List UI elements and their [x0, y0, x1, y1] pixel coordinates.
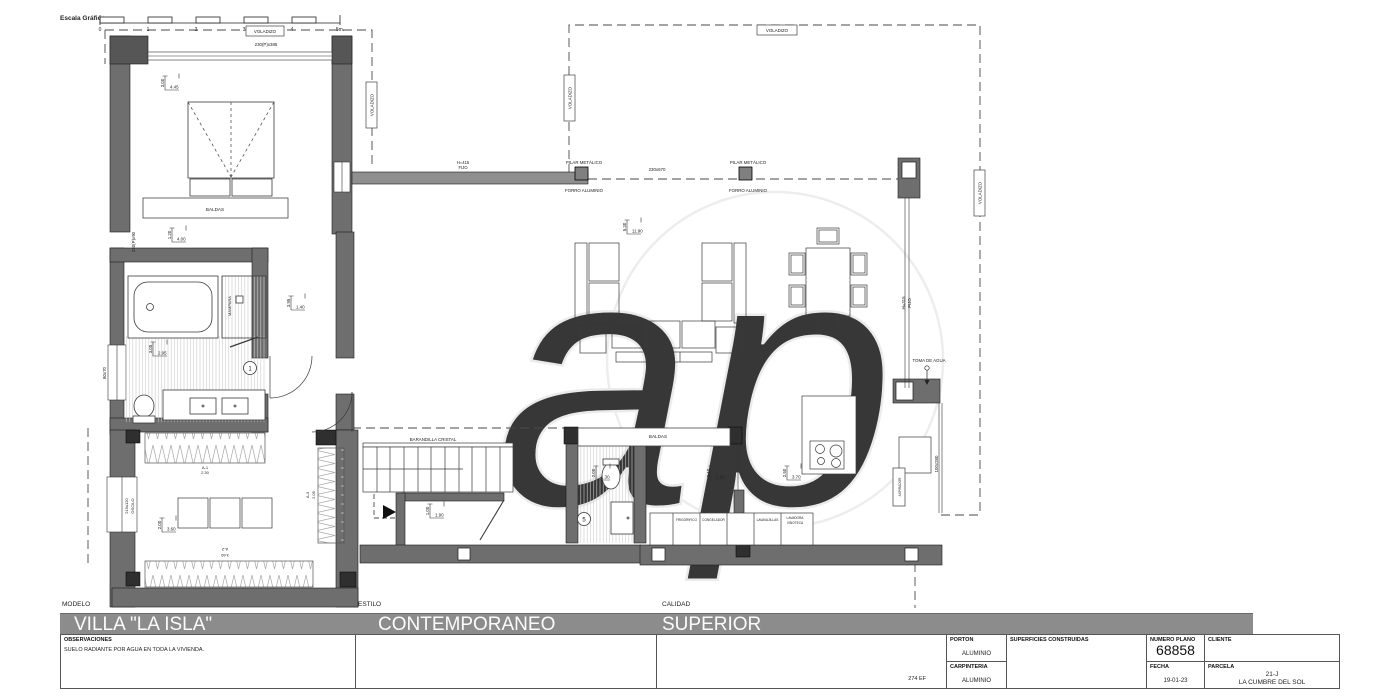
- svg-text:VOLADIZO: VOLADIZO: [254, 29, 277, 34]
- svg-text:1.20: 1.20: [167, 230, 172, 239]
- svg-text:3.60: 3.60: [167, 527, 176, 532]
- barandilla-label: BARANDILLA CRISTAL: [410, 437, 457, 442]
- dressing-room: [145, 433, 344, 587]
- voladizo-box-1: VOLADIZO: [246, 26, 284, 36]
- estilo-label: ESTILO: [358, 601, 381, 608]
- observaciones-box: OBSERVACIONES SUELO RADIANTE POR AGUA EN…: [60, 634, 356, 689]
- voladizo-box-5: VOLADIZO: [974, 170, 985, 216]
- svg-text:3.05: 3.05: [148, 344, 153, 353]
- baldas-label: BALDAS: [649, 434, 667, 439]
- svg-text:11.90: 11.90: [632, 229, 643, 234]
- superficies-label: SUPERFICIES CONSTRUIDAS: [1010, 637, 1089, 643]
- window-label: H=315: [901, 296, 906, 310]
- pilar-label: PILAR METÁLICO: [730, 160, 767, 165]
- svg-text:VOLADIZO: VOLADIZO: [978, 181, 983, 204]
- glass-right: [905, 198, 909, 388]
- svg-text:4.00: 4.00: [177, 237, 186, 242]
- svg-text:2.00: 2.00: [157, 520, 162, 529]
- carpinteria-label: CARPINTERIA: [950, 664, 988, 670]
- parcela-value: 21-JLA CUMBRE DEL SOL: [1205, 671, 1339, 687]
- svg-text:2.10: 2.10: [706, 468, 711, 477]
- fecha-value: 19-01-23: [1147, 678, 1204, 684]
- window-label: 80x70: [102, 366, 107, 379]
- wardrobe-label: A-3: [305, 491, 310, 498]
- pillow: [232, 179, 272, 196]
- window-label: OSCILO: [130, 498, 135, 513]
- room-number-5-badge: 5: [578, 513, 591, 526]
- wardrobe-label: 3.60: [220, 553, 229, 558]
- svg-text:LAVAVAJILLAS: LAVAVAJILLAS: [757, 518, 779, 522]
- dim-dressing: 2.00 3.60: [157, 516, 176, 533]
- svg-text:1.90: 1.90: [435, 513, 444, 518]
- estilo-value: CONTEMPORANEO: [378, 614, 555, 635]
- svg-text:VOLADIZO: VOLADIZO: [568, 86, 573, 109]
- observaciones-label: OBSERVACIONES: [64, 637, 112, 643]
- svg-text:1.00: 1.00: [425, 506, 430, 515]
- cliente-label: CLIENTE: [1208, 637, 1232, 643]
- stairs: [363, 443, 513, 492]
- window-label: 100x280: [934, 455, 939, 472]
- aspirador-label: ASPIRADOR: [898, 477, 902, 496]
- svg-text:1.40: 1.40: [296, 305, 305, 310]
- forro-label: FORRO ALUMINIO: [729, 188, 768, 193]
- room-number-1-badge: 1: [244, 362, 257, 375]
- sheet-ref: 274 EF: [908, 676, 926, 682]
- modelo-label: MODELO: [62, 601, 90, 608]
- modelo-value: VILLA "LA ISLA": [74, 614, 212, 635]
- svg-text:2.00: 2.00: [591, 468, 596, 477]
- svg-text:LAVADORA: LAVADORA: [787, 516, 805, 520]
- window-label: 230(P)x385: [255, 42, 278, 47]
- svg-text:FRIGORIFICO: FRIGORIFICO: [676, 518, 697, 522]
- dim-bedroom2: 1.20 4.00: [167, 226, 186, 243]
- cliente-cell: CLIENTE: [1205, 635, 1339, 662]
- glass-kitchen-right: [939, 403, 942, 513]
- parcela-label: PARCELA: [1208, 664, 1234, 670]
- wardrobe-label: 2.30: [201, 470, 210, 475]
- pillow: [190, 179, 230, 196]
- wardrobe-a1: [145, 433, 265, 463]
- window-label: 230(P)x90: [131, 231, 136, 252]
- svg-text:2.20: 2.20: [716, 475, 725, 480]
- svg-text:5.30: 5.30: [622, 222, 627, 231]
- svg-text:VINOTECA: VINOTECA: [787, 521, 804, 525]
- window-label: 215x120: [124, 498, 129, 514]
- floor-plan-sheet: ap Escala Gráfica 0 1 2 3 4 5m.: [0, 0, 1400, 700]
- title-band: VILLA "LA ISLA" CONTEMPORANEO SUPERIOR: [60, 613, 1253, 636]
- pilar-label: PILAR METÁLICO: [566, 160, 603, 165]
- numero-plano-cell: NUMERO PLANO 68858: [1147, 635, 1205, 662]
- kitchen-tall-unit: [899, 437, 931, 473]
- window-label: 230x670: [649, 167, 666, 172]
- observaciones-text: SUELO RADIANTE POR AGUA EN TODA LA VIVIE…: [64, 647, 204, 653]
- dim-bedroom: 3.00 4.45: [160, 74, 179, 91]
- bathtub: [128, 276, 218, 338]
- window-label: FIJO: [907, 298, 912, 308]
- fecha-label: FECHA: [1150, 664, 1169, 670]
- empty-box-1: [355, 634, 657, 689]
- mampara-label: MAMPARA: [227, 296, 232, 316]
- dim-hall: 3.95 1.40: [286, 294, 305, 311]
- voladizo-box-4: VOLADIZO: [564, 75, 575, 121]
- title-block-table: PORTON ALUMINIO CARPINTERIA ALUMINIO SUP…: [946, 634, 1340, 689]
- forro-label: FORRO ALUMINIO: [565, 188, 604, 193]
- parcela-cell: PARCELA 21-JLA CUMBRE DEL SOL: [1205, 662, 1339, 688]
- svg-text:2.95: 2.95: [158, 351, 167, 356]
- svg-text:CONGELADOR: CONGELADOR: [702, 518, 725, 522]
- porton-cell: PORTON ALUMINIO: [947, 635, 1007, 662]
- svg-text:4.45: 4.45: [170, 85, 179, 90]
- floor-plan-drawing: ap Escala Gráfica 0 1 2 3 4 5m.: [0, 0, 1400, 700]
- toilet: [133, 395, 155, 423]
- bedroom-furniture: [143, 102, 288, 218]
- carpinteria-cell: CARPINTERIA ALUMINIO: [947, 662, 1007, 688]
- porton-label: PORTON: [950, 637, 973, 643]
- vanity: [163, 390, 265, 420]
- svg-text:2.50: 2.50: [782, 468, 787, 477]
- dim-understair: 1.00 1.90: [425, 502, 444, 519]
- wardrobe-label: 2.05: [311, 490, 316, 499]
- carpinteria-value: ALUMINIO: [947, 678, 1006, 684]
- bathroom: [124, 276, 266, 423]
- baldas-label: BALDAS: [206, 207, 224, 212]
- stair-handrail: [363, 443, 513, 447]
- superficies-cell: SUPERFICIES CONSTRUIDAS: [1007, 635, 1147, 688]
- svg-text:VOLADIZO: VOLADIZO: [370, 93, 375, 116]
- wardrobe-label: A-2: [221, 547, 228, 552]
- wardrobe-a2: [145, 561, 313, 587]
- calidad-value: SUPERIOR: [662, 614, 761, 635]
- svg-text:3.95: 3.95: [286, 298, 291, 307]
- svg-text:3.70: 3.70: [792, 475, 801, 480]
- toma-agua-label: TOMA DE AGUA: [912, 358, 945, 363]
- svg-text:VOLADIZO: VOLADIZO: [766, 28, 789, 33]
- voladizo-box-2: VOLADIZO: [366, 82, 377, 128]
- voladizo-box-3: VOLADIZO: [757, 25, 797, 35]
- kitchen-island: [802, 396, 856, 474]
- entrance-arrow: [383, 505, 396, 519]
- porton-value: ALUMINIO: [947, 651, 1006, 657]
- fecha-cell: FECHA 19-01-23: [1147, 662, 1205, 688]
- numero-plano-value: 68858: [1147, 642, 1204, 658]
- empty-box-2: 274 EF: [656, 634, 947, 689]
- wardrobe-a3: [318, 448, 344, 543]
- svg-text:0: 0: [99, 27, 102, 33]
- svg-text:1.30: 1.30: [601, 475, 610, 480]
- scale-bar-title: Escala Gráfica: [60, 15, 105, 22]
- window-label: FIJO: [458, 165, 468, 170]
- svg-text:3.00: 3.00: [160, 78, 165, 87]
- calidad-label: CALIDAD: [662, 601, 690, 608]
- sink-2: [611, 502, 633, 534]
